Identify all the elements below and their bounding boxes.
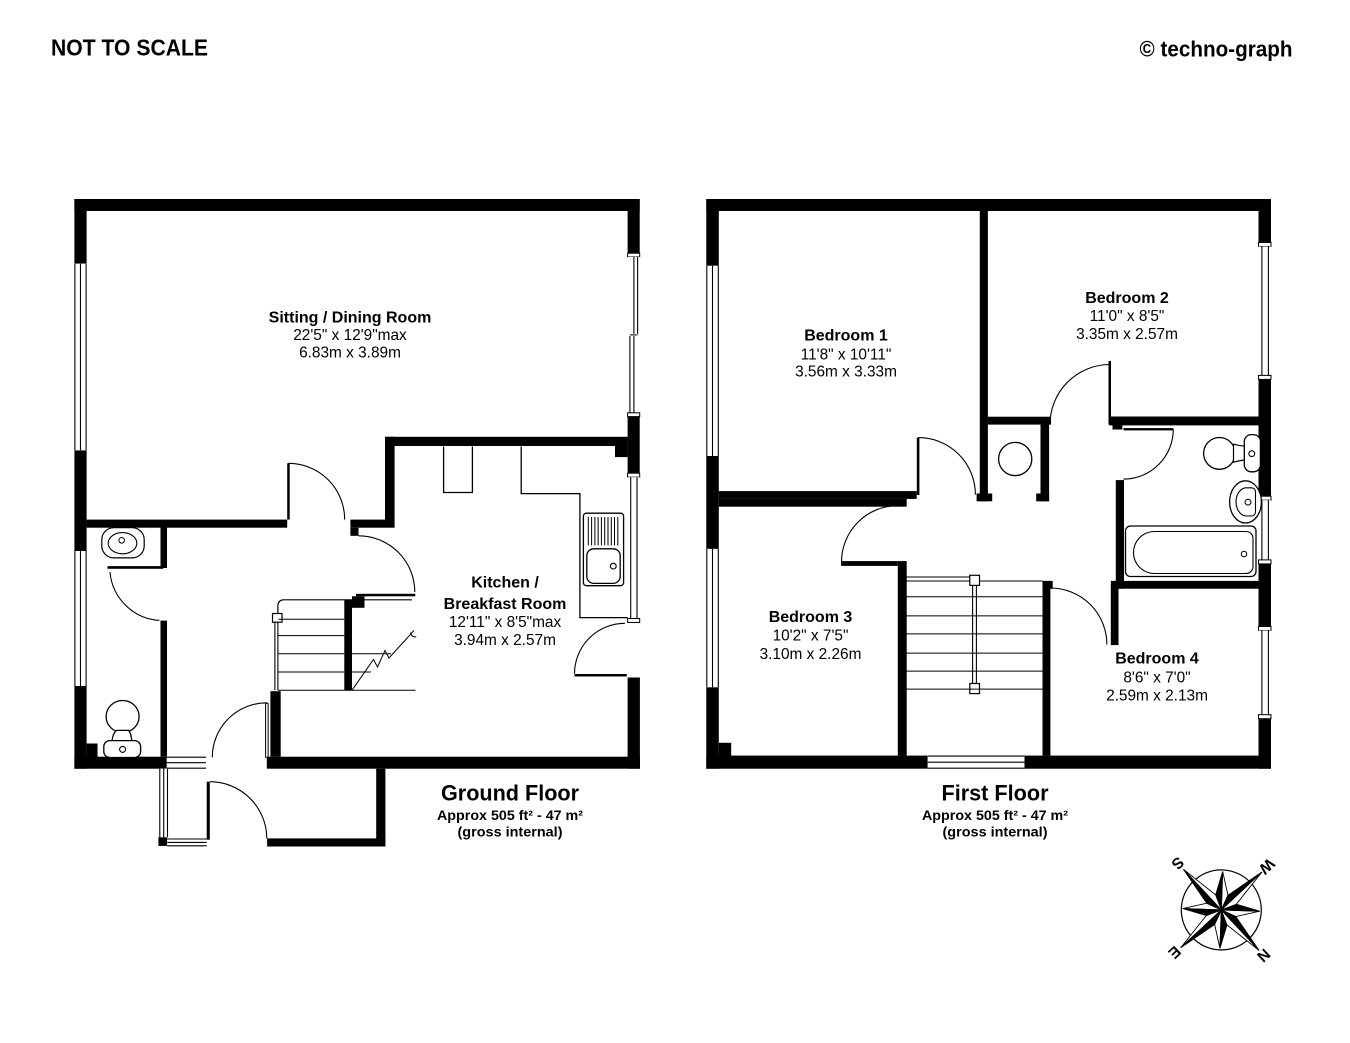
svg-text:Bedroom 3: Bedroom 3 (769, 609, 853, 626)
svg-text:2.59m x 2.13m: 2.59m x 2.13m (1106, 688, 1208, 705)
svg-text:3.35m x 2.57m: 3.35m x 2.57m (1076, 326, 1178, 343)
svg-text:Kitchen /: Kitchen / (471, 575, 539, 592)
svg-text:Approx 505 ft² - 47 m²: Approx 505 ft² - 47 m² (437, 808, 584, 823)
svg-text:(gross internal): (gross internal) (943, 824, 1048, 839)
svg-text:First Floor: First Floor (942, 781, 1049, 806)
svg-text:(gross internal): (gross internal) (458, 824, 563, 839)
svg-text:Breakfast Room: Breakfast Room (444, 596, 567, 613)
svg-text:10'2" x 7'5": 10'2" x 7'5" (773, 628, 849, 645)
svg-text:Bedroom 2: Bedroom 2 (1085, 290, 1169, 307)
svg-text:Ground Floor: Ground Floor (441, 781, 579, 806)
svg-text:8'6" x 7'0": 8'6" x 7'0" (1123, 670, 1190, 687)
svg-text:3.56m x 3.33m: 3.56m x 3.33m (795, 363, 897, 380)
svg-text:Sitting / Dining Room: Sitting / Dining Room (269, 310, 432, 327)
svg-text:22'5" x 12'9"max: 22'5" x 12'9"max (293, 327, 407, 344)
svg-text:NOT TO SCALE: NOT TO SCALE (51, 34, 208, 60)
svg-text:11'8" x 10'11": 11'8" x 10'11" (801, 346, 892, 363)
svg-text:11'0" x 8'5": 11'0" x 8'5" (1090, 308, 1165, 325)
svg-text:© techno-graph: © techno-graph (1140, 37, 1293, 62)
svg-text:3.94m x 2.57m: 3.94m x 2.57m (454, 632, 556, 649)
svg-text:6.83m x 3.89m: 6.83m x 3.89m (299, 344, 401, 361)
svg-text:Bedroom 1: Bedroom 1 (804, 328, 888, 345)
svg-text:3.10m x 2.26m: 3.10m x 2.26m (760, 646, 862, 663)
svg-text:12'11" x 8'5"max: 12'11" x 8'5"max (449, 614, 562, 631)
svg-text:Approx 505 ft² - 47 m²: Approx 505 ft² - 47 m² (922, 808, 1069, 823)
svg-text:Bedroom 4: Bedroom 4 (1115, 651, 1199, 668)
